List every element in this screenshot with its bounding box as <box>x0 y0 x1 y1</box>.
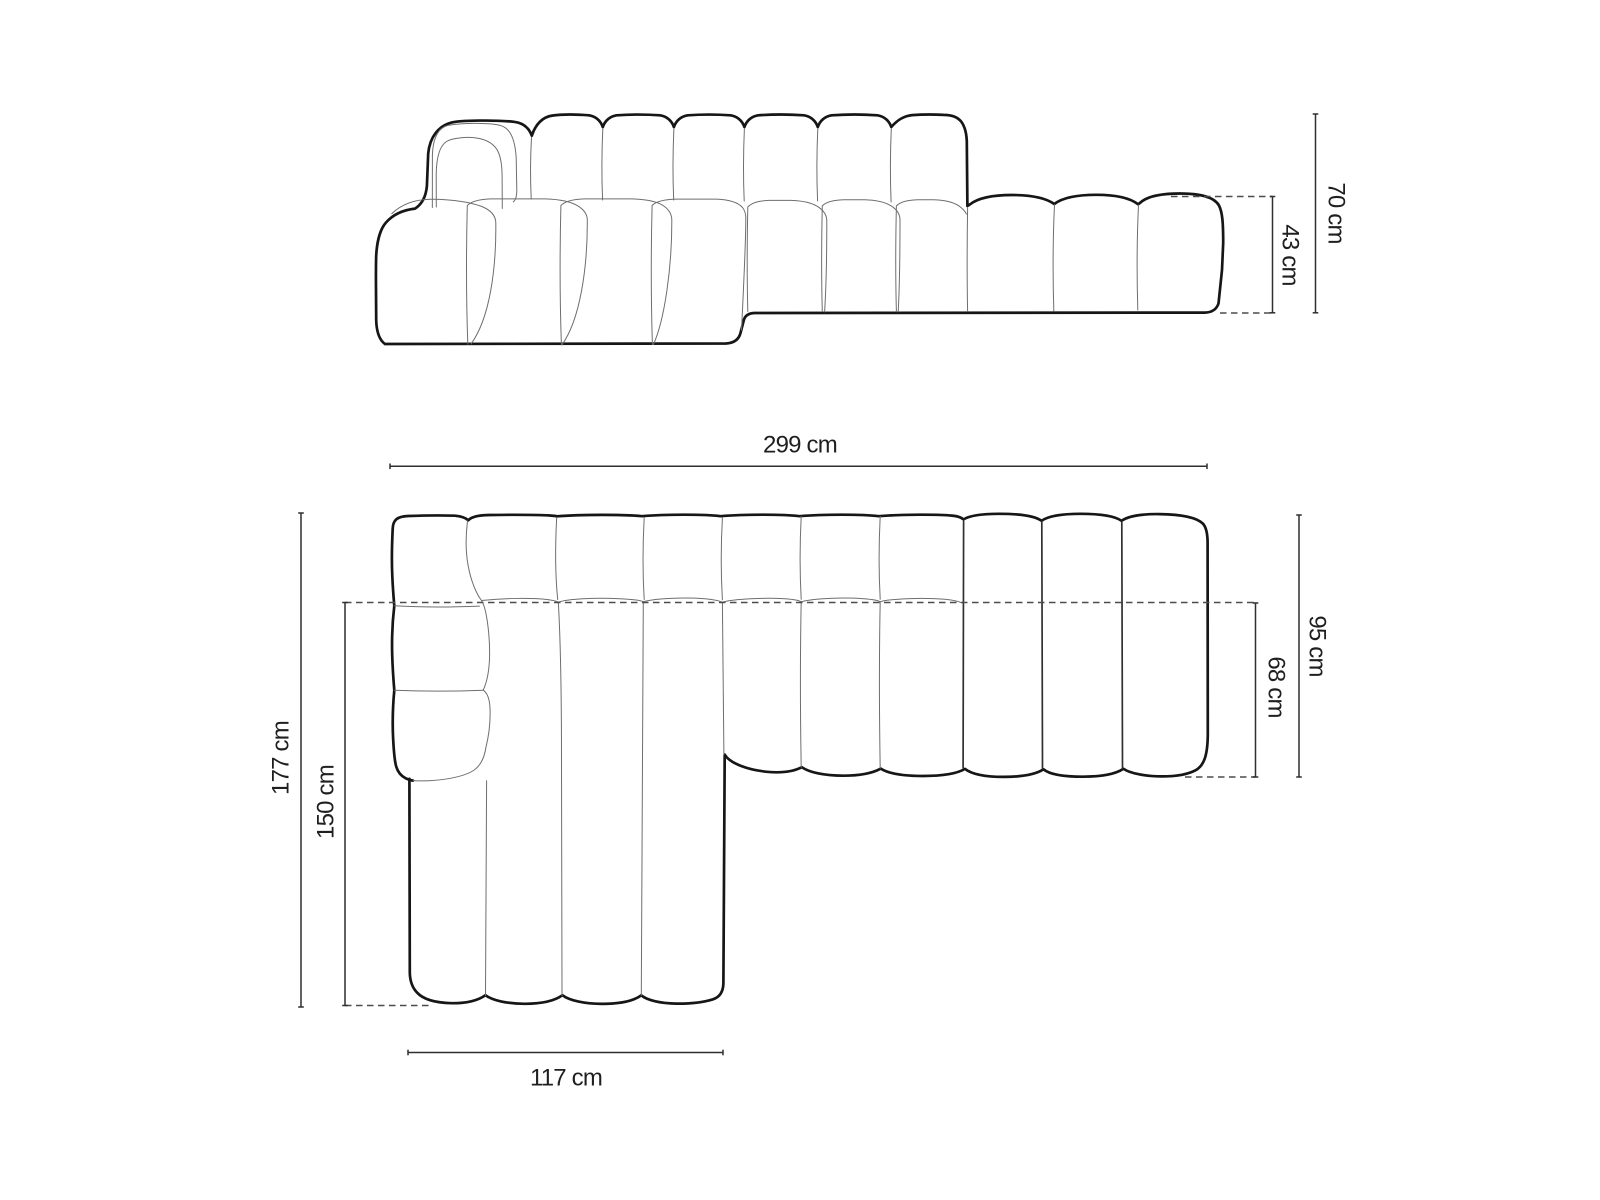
svg-text:299 cm: 299 cm <box>763 432 837 459</box>
svg-text:95 cm: 95 cm <box>1304 615 1331 676</box>
svg-text:43 cm: 43 cm <box>1277 224 1304 285</box>
svg-text:177 cm: 177 cm <box>268 721 295 795</box>
svg-text:68 cm: 68 cm <box>1263 656 1290 717</box>
svg-text:70 cm: 70 cm <box>1323 182 1350 243</box>
svg-text:117 cm: 117 cm <box>530 1065 602 1092</box>
svg-text:150 cm: 150 cm <box>313 765 340 839</box>
